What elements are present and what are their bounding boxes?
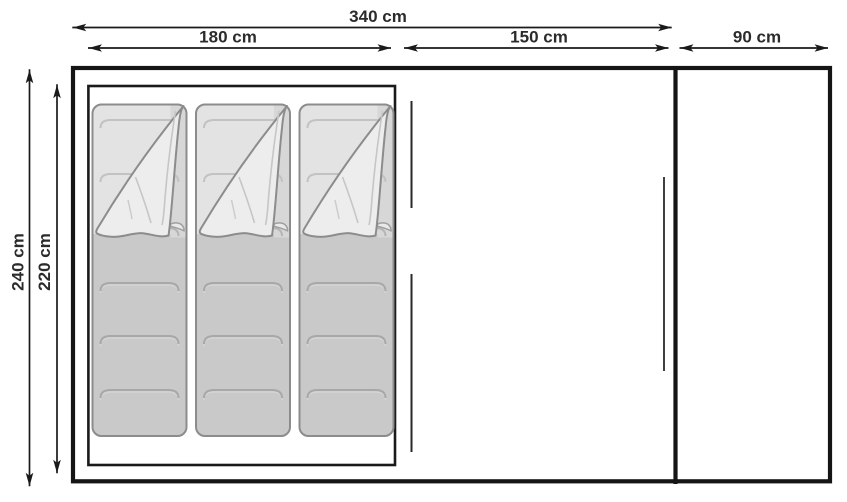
svg-text:240 cm: 240 cm <box>9 233 28 291</box>
svg-text:180 cm: 180 cm <box>199 28 257 47</box>
svg-text:90 cm: 90 cm <box>733 28 781 47</box>
svg-text:340 cm: 340 cm <box>349 7 407 26</box>
svg-text:150 cm: 150 cm <box>510 28 568 47</box>
svg-text:220 cm: 220 cm <box>35 233 54 291</box>
